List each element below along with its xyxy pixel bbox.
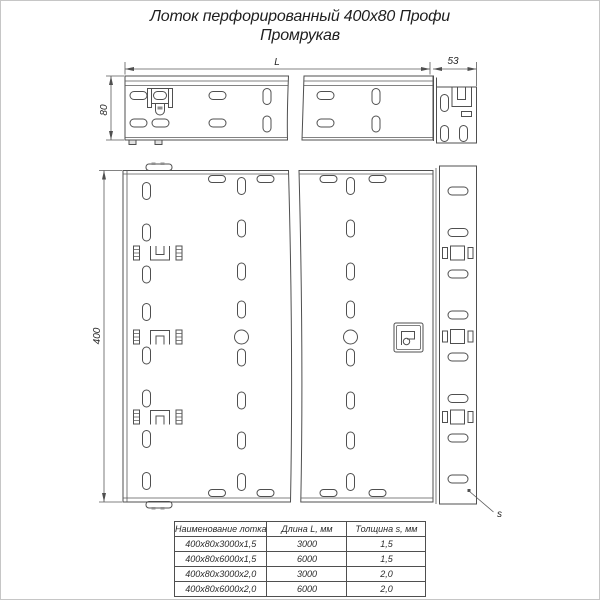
slot: [443, 412, 448, 423]
slot: [347, 178, 355, 195]
latch-mark: [158, 107, 163, 110]
slot: [320, 490, 337, 497]
drawing-sheet: Лоток перфорированный 400х80 Профи Промр…: [0, 0, 600, 600]
hatch-lines: [176, 334, 182, 341]
slot: [468, 412, 473, 423]
slot: [448, 187, 468, 195]
cell-name: 400х80х6000х2,0: [175, 582, 267, 597]
slot: [143, 347, 151, 364]
slot: [257, 490, 274, 497]
slot-column-middle: [235, 178, 249, 491]
dimension-length: L: [125, 57, 430, 75]
slot: [441, 126, 449, 142]
dimension-label-height: 80: [99, 104, 110, 116]
plan-panel-left: [123, 171, 292, 503]
slot: [448, 475, 468, 483]
arrowhead: [421, 67, 430, 71]
arrowhead: [102, 171, 106, 180]
square-hole: [451, 330, 465, 344]
strip-perforations: [443, 187, 474, 483]
foot: [129, 140, 136, 145]
slot: [347, 220, 355, 237]
slot: [372, 89, 380, 105]
slot: [238, 432, 246, 449]
arrowhead: [109, 76, 113, 85]
cell-length: 6000: [267, 582, 347, 597]
slot: [448, 353, 468, 361]
table-row: 400х80х3000х2,0 3000 2,0: [175, 567, 426, 582]
slot: [347, 263, 355, 280]
arrowhead: [468, 67, 477, 71]
round-hole: [344, 330, 358, 344]
table-row: 400х80х6000х1,5 6000 1,5: [175, 552, 426, 567]
table-row: 400х80х3000х1,5 3000 1,5: [175, 537, 426, 552]
hatch-lines: [176, 414, 182, 421]
tab-notch: [152, 163, 156, 166]
edge-tab-bottom: [146, 502, 172, 510]
arrowhead: [125, 67, 134, 71]
round-hole: [235, 330, 249, 344]
slot: [209, 490, 226, 497]
slot: [448, 229, 468, 237]
slot: [143, 183, 151, 200]
square-hole: [451, 410, 465, 424]
bracket-pattern: [134, 410, 183, 424]
logo-glyph-curl: [403, 338, 409, 344]
slot: [238, 392, 246, 409]
cell-name: 400х80х3000х2,0: [175, 567, 267, 582]
edge-cutout: [452, 88, 472, 107]
connector-end-side: [434, 76, 477, 143]
slot: [238, 178, 246, 195]
latch-plate: [169, 89, 173, 108]
bracket-cutout: [151, 331, 170, 345]
slot: [152, 119, 169, 127]
hatch-lines: [176, 250, 182, 257]
slot: [130, 92, 147, 100]
cell-thickness: 1,5: [347, 552, 426, 567]
latch-clip: [148, 89, 173, 116]
cell-thickness: 2,0: [347, 567, 426, 582]
flange-lines: [125, 81, 433, 138]
plan-view: 400: [92, 163, 502, 521]
slot: [238, 301, 246, 318]
slot: [263, 116, 271, 132]
slot: [143, 304, 151, 321]
spec-header-row: Наименование лотка Длина L, мм Толщина s…: [175, 522, 426, 537]
latch-plate: [148, 89, 152, 108]
slot: [238, 263, 246, 280]
plan-panel-right: [299, 171, 433, 503]
slot: [130, 119, 147, 127]
slot: [320, 176, 337, 183]
slot: [443, 248, 448, 259]
slot: [347, 432, 355, 449]
header-length: Длина L, мм: [267, 522, 347, 537]
slot: [369, 176, 386, 183]
latch-frame: [152, 89, 169, 104]
plan-oval-rows: [209, 176, 387, 497]
slot: [209, 119, 226, 127]
tab-notch: [161, 507, 165, 510]
slot: [468, 331, 473, 342]
slot-column-right: [344, 178, 358, 491]
cell-thickness: 2,0: [347, 582, 426, 597]
dimension-label-width: 400: [92, 327, 103, 344]
leader-line: [469, 491, 494, 512]
dimension-label-length: L: [274, 57, 280, 68]
cell-name: 400х80х3000х1,5: [175, 537, 267, 552]
cell-length: 3000: [267, 537, 347, 552]
spec-table: Наименование лотка Длина L, мм Толщина s…: [174, 521, 426, 597]
edge-tab-top: [146, 163, 172, 171]
square-hole: [451, 246, 465, 260]
slot: [347, 349, 355, 366]
slot: [317, 92, 334, 100]
slot: [143, 224, 151, 241]
slot: [209, 176, 226, 183]
slot: [443, 331, 448, 342]
slot: [372, 116, 380, 132]
slot: [448, 395, 468, 403]
slot: [317, 119, 334, 127]
cell-length: 3000: [267, 567, 347, 582]
slot: [209, 92, 226, 100]
slot: [143, 266, 151, 283]
square-pattern: [443, 330, 474, 344]
arrowhead: [109, 131, 113, 140]
slot: [238, 474, 246, 491]
slot: [238, 220, 246, 237]
bracket-pattern: [134, 330, 183, 344]
slot-column-left: [143, 183, 151, 490]
table-row: 400х80х6000х2,0 6000 2,0: [175, 582, 426, 597]
slot: [460, 126, 468, 142]
slot: [441, 95, 449, 112]
logo-outer-frame: [394, 323, 423, 352]
dimension-width: 400: [92, 171, 122, 503]
side-perforations-lower: [130, 116, 380, 132]
tab-notch: [161, 163, 165, 166]
tab-notch: [152, 507, 156, 510]
dimension-height: 80: [99, 76, 124, 140]
slot: [347, 301, 355, 318]
brand-logo-stamp: [394, 323, 423, 352]
slot: [448, 311, 468, 319]
arrowhead: [433, 67, 442, 71]
side-view: L 53 80: [99, 56, 477, 145]
slot: [468, 248, 473, 259]
square-pattern: [443, 410, 474, 424]
connector-end-strip: [440, 166, 477, 504]
arrowhead: [102, 493, 106, 502]
header-thickness: Толщина s, мм: [347, 522, 426, 537]
logo-inner-frame: [397, 326, 421, 350]
slot: [347, 474, 355, 491]
technical-drawing: L 53 80: [0, 0, 600, 600]
slot: [462, 112, 472, 117]
slot: [143, 431, 151, 448]
slot: [369, 490, 386, 497]
slot: [143, 390, 151, 407]
square-pattern: [443, 246, 474, 260]
header-name: Наименование лотка: [175, 522, 267, 537]
slot: [143, 473, 151, 490]
slot: [257, 176, 274, 183]
slot: [263, 89, 271, 105]
dimension-label-end-section: 53: [447, 56, 459, 67]
tab: [146, 164, 172, 171]
latch-slot: [154, 92, 167, 100]
hatch-lines: [134, 250, 140, 257]
hatch-lines: [134, 414, 140, 421]
hatch-lines: [134, 334, 140, 341]
slot: [238, 349, 246, 366]
slot: [347, 392, 355, 409]
side-perforations-upper: [130, 89, 380, 105]
cell-thickness: 1,5: [347, 537, 426, 552]
dimension-end-section: 53: [433, 56, 477, 86]
slot: [448, 434, 468, 442]
bracket-pattern: [134, 246, 183, 260]
bracket-cutout: [151, 247, 170, 261]
cell-length: 6000: [267, 552, 347, 567]
foot: [155, 140, 162, 145]
slot: [448, 270, 468, 278]
cell-name: 400х80х6000х1,5: [175, 552, 267, 567]
dimension-label-thickness: s: [497, 509, 502, 520]
bracket-cutout: [151, 411, 170, 425]
